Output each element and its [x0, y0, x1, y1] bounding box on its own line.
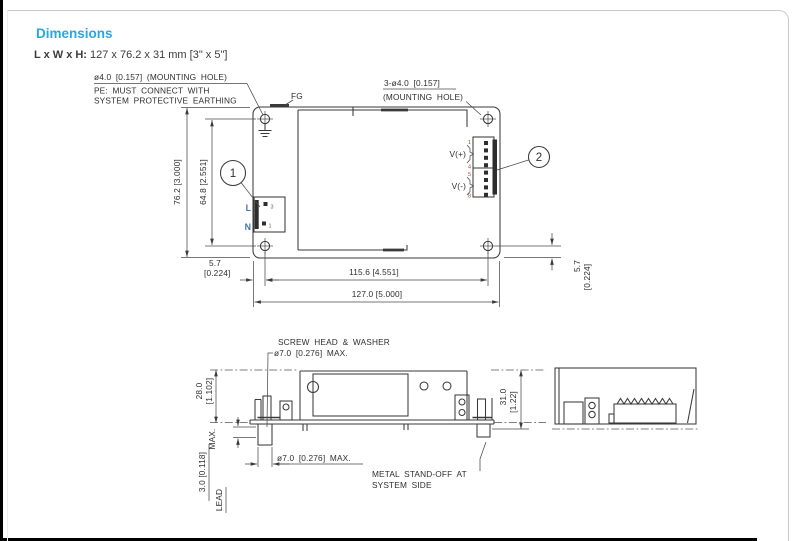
screw-note-line1: SCREW HEAD & WASHER — [278, 337, 390, 347]
dim-case-height-inch: [1.102] — [204, 378, 214, 404]
vminus-label: V(-) — [452, 181, 467, 191]
dc-output-connector — [467, 137, 497, 197]
output-pin4-number: 4 — [468, 165, 471, 171]
standoff-diameter-note: ø7.0 [0.276] MAX. — [277, 453, 351, 463]
vplus-label: V(+) — [449, 149, 466, 159]
dim-total-height-inch: [1.22] — [508, 391, 518, 413]
mounting-hole-bottom-left — [257, 238, 273, 254]
mounting-hole-note2-line2: (MOUNTING HOLE) — [383, 92, 463, 102]
line-label: L — [246, 203, 252, 213]
input-pin1-number: 1 — [269, 224, 272, 230]
output-pin1-number: 1 — [468, 140, 471, 146]
dim-left-offset-value: 5.7 — [209, 258, 221, 268]
dim-lead-max: MAX. — [207, 429, 217, 450]
mounting-hole-note2-line1: 3-ø4.0 [0.157] — [384, 78, 440, 88]
earth-ground-icon — [259, 124, 272, 137]
standoff-note-line1: METAL STAND-OFF AT — [372, 469, 467, 479]
mounting-hole-note: ø4.0 [0.157] (MOUNTING HOLE) — [94, 72, 227, 82]
top-view-dimensions — [181, 108, 561, 308]
callout-1-number: 1 — [230, 168, 236, 180]
dim-height-inner: 64.8 [2.551] — [198, 159, 208, 205]
dim-total-height-mm: 31.0 — [498, 388, 508, 405]
neutral-label: N — [245, 222, 251, 232]
pe-note-line2: SYSTEM PROTECTIVE EARTHING — [94, 96, 237, 106]
side-cover — [300, 371, 467, 420]
callout-2-number: 2 — [536, 152, 542, 164]
lead-label: LEAD — [214, 489, 224, 511]
pe-note-line1: PE: MUST CONNECT WITH — [94, 86, 209, 96]
dim-case-height-mm: 28.0 — [194, 382, 204, 399]
side-view-dimensions — [209, 353, 529, 513]
dim-left-offset-inch: [0.224] — [204, 268, 230, 278]
standoff-note-line2: SYSTEM SIDE — [372, 480, 432, 490]
dim-lead-value: 3.0 [0.118] — [197, 452, 207, 492]
mounting-hole-top-right — [480, 111, 496, 127]
end-view — [555, 368, 696, 424]
dim-right-offset-value: 5.7 — [572, 260, 582, 272]
dimension-drawing: ø4.0 [0.157] (MOUNTING HOLE) PE: MUST CO… — [0, 0, 797, 541]
cover-outline — [298, 108, 467, 251]
output-pin8-number: 8 — [468, 194, 471, 200]
side-internal-parts — [255, 374, 492, 431]
dim-right-offset-inch: [0.224] — [582, 264, 592, 290]
screw-note-line2: ø7.0 [0.276] MAX. — [274, 348, 348, 358]
dim-width-inner: 115.6 [4.551] — [349, 267, 399, 277]
end-view-outline — [555, 368, 696, 424]
datasheet-page: Dimensions L x W x H:127 x 76.2 x 31 mm … — [0, 0, 797, 541]
fg-label: FG — [291, 91, 303, 101]
input-pin3-number: 3 — [271, 205, 274, 211]
dim-height: 76.2 [3.000] — [172, 159, 182, 205]
mounting-hole-bottom-right — [480, 238, 496, 254]
output-pin5-number: 5 — [468, 172, 471, 178]
dim-width: 127.0 [5.000] — [352, 289, 402, 299]
side-view: SCREW HEAD & WASHER ø7.0 [0.276] MAX. 28… — [194, 337, 529, 513]
chassis-base — [250, 420, 494, 424]
terminal-block — [609, 399, 676, 424]
standoffs — [258, 424, 490, 445]
top-view: ø4.0 [0.157] (MOUNTING HOLE) PE: MUST CO… — [94, 72, 592, 307]
